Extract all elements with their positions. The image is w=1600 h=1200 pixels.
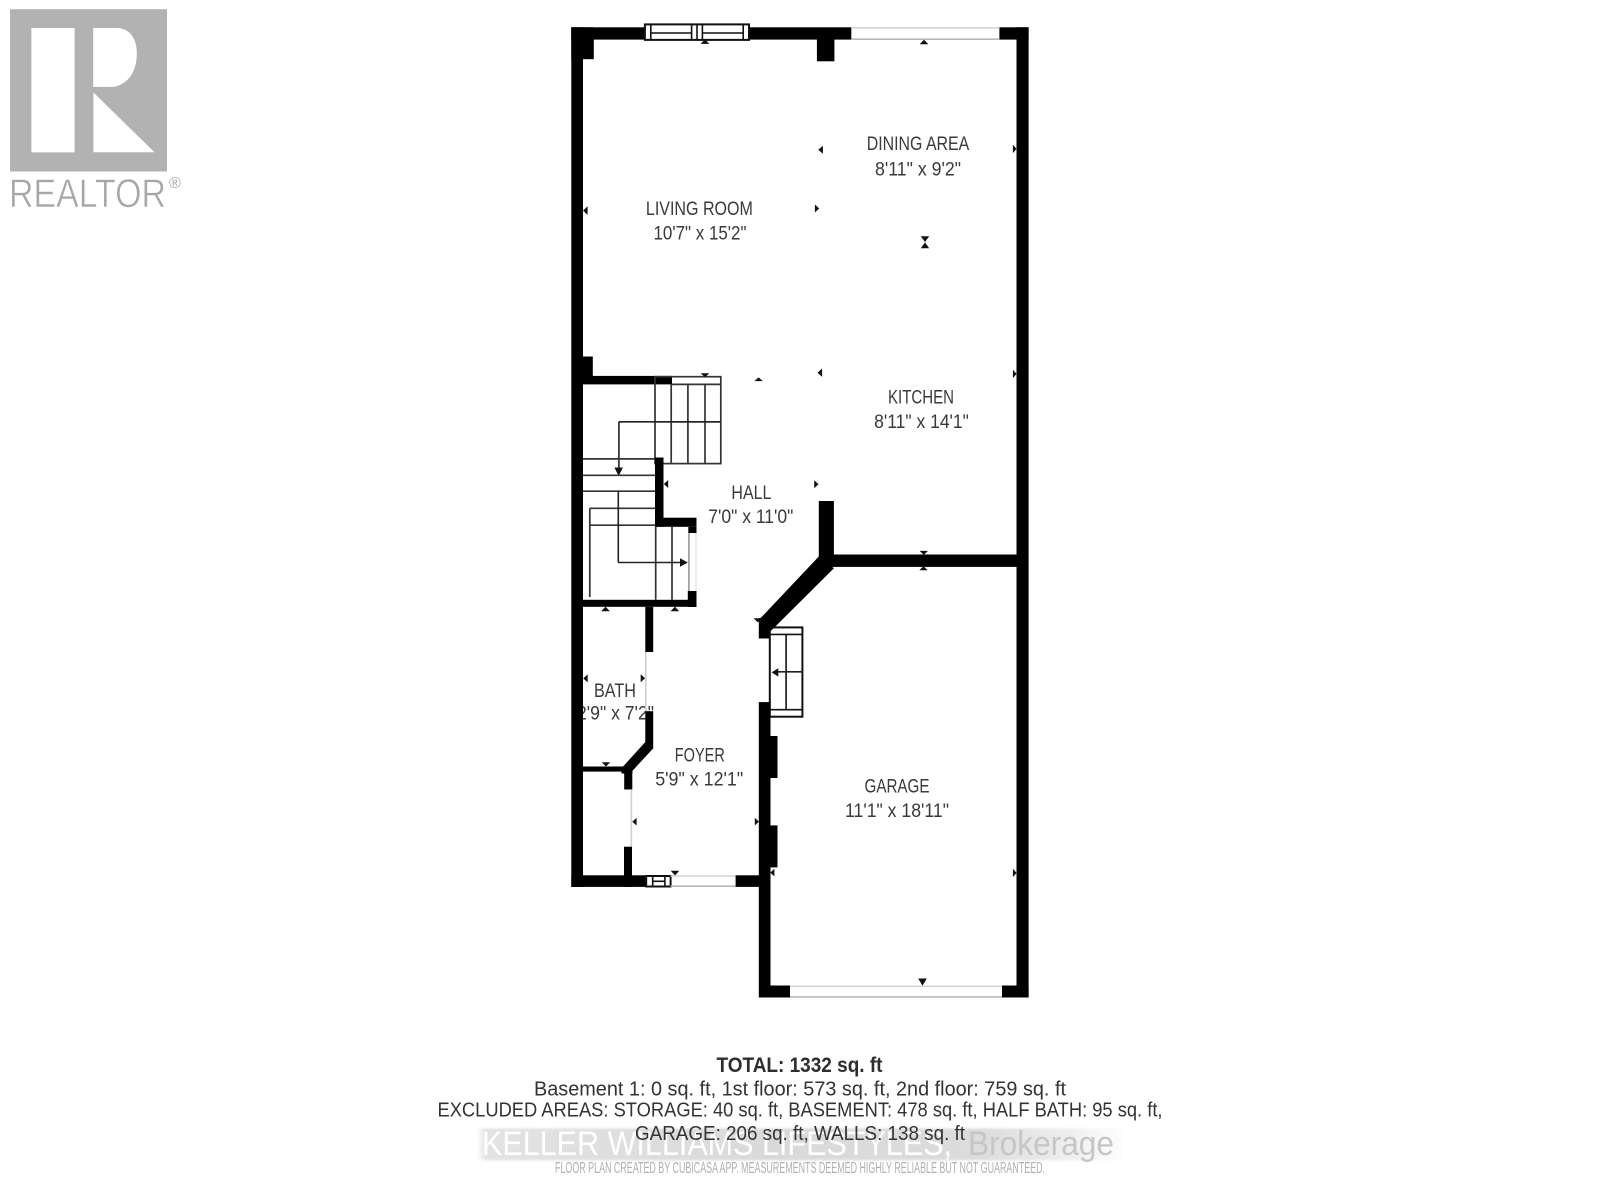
svg-text:REALTOR: REALTOR	[9, 172, 166, 216]
svg-text:Brokerage: Brokerage	[968, 1125, 1114, 1163]
svg-text:GARAGE: 206 sq. ft, WALLS: 138: GARAGE: 206 sq. ft, WALLS: 138 sq. ft	[635, 1123, 965, 1145]
svg-text:2'9" x 7'2": 2'9" x 7'2"	[577, 704, 654, 725]
svg-text:DINING AREA: DINING AREA	[867, 134, 970, 155]
svg-text:7'0" x 11'0": 7'0" x 11'0"	[708, 507, 793, 528]
svg-text:KITCHEN: KITCHEN	[888, 387, 954, 408]
svg-text:8'11" x 14'1": 8'11" x 14'1"	[874, 412, 969, 433]
svg-text:EXCLUDED AREAS: STORAGE: 40 sq: EXCLUDED AREAS: STORAGE: 40 sq. ft, BASE…	[438, 1099, 1163, 1121]
svg-text:HALL: HALL	[731, 483, 771, 504]
svg-text:10'7" x 15'2": 10'7" x 15'2"	[654, 224, 747, 245]
svg-text:LIVING ROOM: LIVING ROOM	[646, 199, 753, 220]
svg-text:FOYER: FOYER	[675, 745, 725, 766]
svg-text:®: ®	[169, 175, 181, 192]
svg-text:TOTAL: 1332 sq. ft: TOTAL: 1332 sq. ft	[717, 1054, 883, 1077]
svg-text:5'9" x 12'1": 5'9" x 12'1"	[655, 770, 743, 791]
svg-text:8'11" x 9'2": 8'11" x 9'2"	[875, 159, 961, 180]
svg-text:FLOOR PLAN CREATED BY CUBICASA: FLOOR PLAN CREATED BY CUBICASA APP. MEAS…	[555, 1160, 1045, 1177]
svg-text:Basement 1: 0 sq. ft, 1st floo: Basement 1: 0 sq. ft, 1st floor: 573 sq.…	[534, 1079, 1066, 1101]
svg-text:BATH: BATH	[594, 681, 636, 702]
svg-text:GARAGE: GARAGE	[865, 777, 930, 798]
svg-text:11'1" x 18'11": 11'1" x 18'11"	[845, 801, 949, 822]
